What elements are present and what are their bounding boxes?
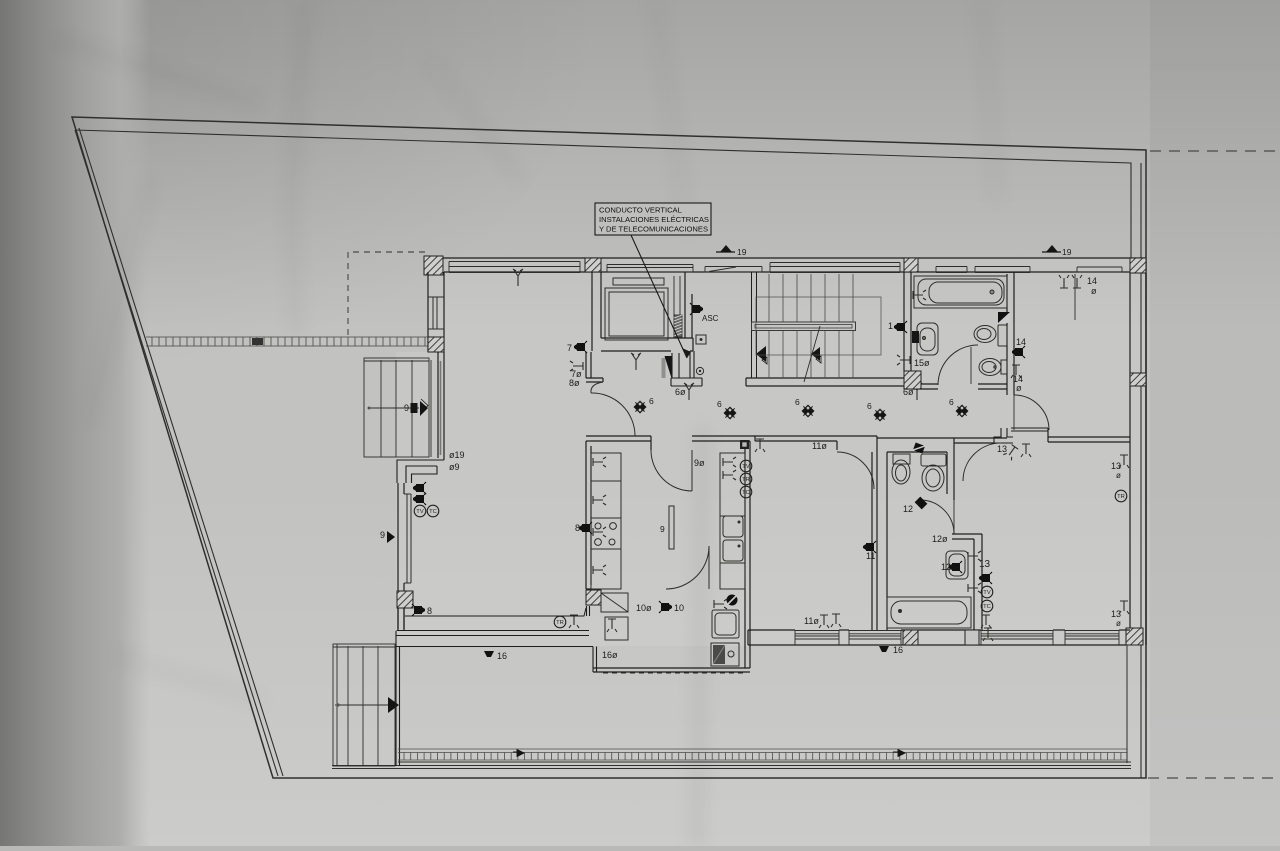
- svg-text:9: 9: [660, 524, 665, 534]
- svg-text:TR: TR: [556, 620, 564, 626]
- svg-text:7: 7: [567, 343, 572, 353]
- svg-text:ø: ø: [1016, 383, 1022, 393]
- svg-text:TV: TV: [416, 509, 424, 515]
- svg-text:TC: TC: [429, 509, 437, 515]
- svg-text:TV: TV: [983, 590, 991, 596]
- svg-text:TC: TC: [983, 604, 991, 610]
- svg-text:6: 6: [717, 399, 722, 409]
- svg-text:19: 19: [737, 247, 747, 257]
- svg-text:6: 6: [867, 401, 872, 411]
- svg-text:6: 6: [949, 397, 954, 407]
- svg-text:ASC: ASC: [702, 314, 719, 323]
- svg-text:13: 13: [997, 444, 1007, 454]
- svg-text:12ø: 12ø: [932, 534, 948, 544]
- svg-text:TV: TV: [742, 464, 750, 470]
- svg-text:9: 9: [404, 403, 409, 413]
- svg-text:13: 13: [1111, 461, 1121, 471]
- svg-text:ø: ø: [1116, 619, 1121, 628]
- svg-text:12: 12: [903, 504, 913, 514]
- svg-text:16ø: 16ø: [602, 650, 618, 660]
- svg-text:11: 11: [866, 551, 875, 561]
- svg-text:9ø: 9ø: [694, 458, 705, 468]
- svg-text:14: 14: [1016, 337, 1026, 347]
- svg-text:TC: TC: [742, 490, 750, 496]
- svg-text:9: 9: [380, 530, 385, 540]
- svg-text:6: 6: [649, 396, 654, 406]
- svg-text:ø: ø: [1116, 471, 1121, 480]
- svg-text:1: 1: [888, 321, 893, 331]
- svg-text:8: 8: [427, 606, 432, 616]
- svg-text:14: 14: [1087, 276, 1097, 286]
- svg-text:19: 19: [1062, 247, 1072, 257]
- svg-text:10ø: 10ø: [636, 603, 652, 613]
- svg-text:INSTALACIONES ELÉCTRICAS: INSTALACIONES ELÉCTRICAS: [599, 215, 709, 224]
- svg-text:10: 10: [674, 603, 684, 613]
- svg-text:ø: ø: [1091, 286, 1097, 296]
- svg-text:16: 16: [893, 645, 903, 655]
- svg-text:15ø: 15ø: [914, 358, 930, 368]
- svg-text:11ø: 11ø: [804, 616, 819, 626]
- svg-text:ø19: ø19: [449, 450, 465, 460]
- svg-text:16: 16: [497, 651, 507, 661]
- svg-text:6: 6: [795, 397, 800, 407]
- svg-text:11ø: 11ø: [812, 441, 827, 451]
- svg-text:TR: TR: [1117, 494, 1125, 500]
- svg-text:Y DE TELECOMUNICACIONES: Y DE TELECOMUNICACIONES: [599, 225, 708, 234]
- svg-text:6ø: 6ø: [675, 387, 686, 397]
- svg-text:8ø: 8ø: [569, 378, 580, 388]
- svg-text:CONDUCTO VERTICAL: CONDUCTO VERTICAL: [599, 206, 682, 215]
- svg-text:TR: TR: [742, 477, 750, 483]
- svg-text:ø9: ø9: [449, 462, 460, 472]
